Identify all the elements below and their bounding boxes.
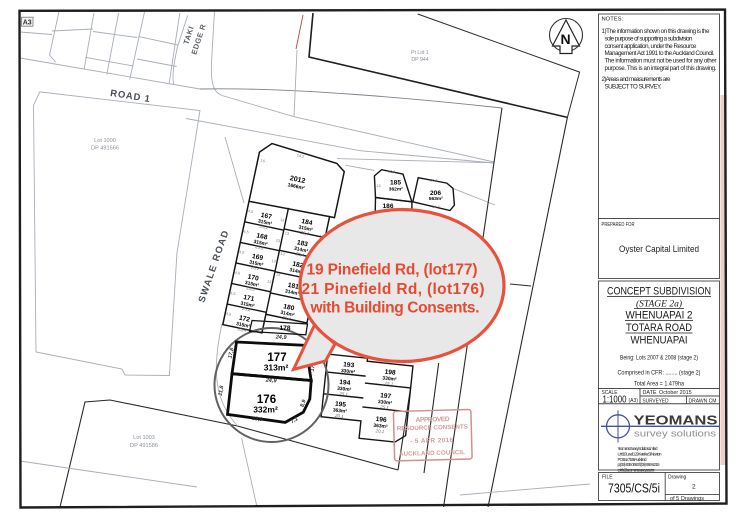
svg-text:563m²: 563m²: [429, 196, 444, 202]
svg-text:e: info@yeomanssurveys.co.nz: e: info@yeomanssurveys.co.nz: [618, 468, 655, 473]
svg-text:survey solutions: survey solutions: [634, 429, 717, 439]
svg-text:NOTES:: NOTES:: [602, 17, 624, 23]
svg-text:13: 13: [376, 184, 380, 188]
svg-text:WHENUAPAI: WHENUAPAI: [631, 335, 688, 347]
svg-text:25,1: 25,1: [338, 391, 349, 397]
svg-text:7305/CS/5i: 7305/CS/5i: [608, 482, 660, 496]
svg-text:sole purpose of supporting a s: sole purpose of supporting a subdivision: [605, 35, 694, 42]
svg-text:- 5 APR 2016: - 5 APR 2016: [410, 437, 454, 445]
svg-text:CONCEPT SUBDIVISION: CONCEPT SUBDIVISION: [607, 286, 711, 298]
svg-text:purpose. This is an integral p: purpose. This is an integral part of thi…: [605, 65, 717, 72]
svg-text:p:(09) 836 0660 f:(09) 969 62: p:(09) 836 0660 f:(09) 969 6219: [618, 462, 661, 467]
svg-text:21 Pinefield Rd, (lot176): 21 Pinefield Rd, (lot176): [302, 281, 485, 298]
svg-text:Comprised in CFR: ........ (st: Comprised in CFR: ........ (stage 2): [618, 370, 701, 377]
svg-text:20,1: 20,1: [334, 413, 345, 419]
svg-text:196: 196: [375, 416, 387, 424]
svg-text:198: 198: [384, 369, 396, 377]
svg-text:193: 193: [343, 361, 355, 369]
svg-text:of 5 Drawings: of 5 Drawings: [670, 496, 704, 502]
svg-text:2: 2: [692, 484, 696, 491]
svg-text:Oyster Capital Limited: Oyster Capital Limited: [619, 244, 699, 255]
svg-text:DP 491586: DP 491586: [130, 443, 158, 449]
svg-text:N: N: [560, 31, 570, 47]
svg-text:The information must not be us: The information must not be used for any…: [605, 58, 717, 65]
svg-text:Lot 1000: Lot 1000: [94, 138, 116, 144]
svg-text:19 Pinefield Rd, (lot177): 19 Pinefield Rd, (lot177): [307, 262, 478, 279]
svg-text:APPROVED: APPROVED: [416, 416, 450, 424]
svg-text:with Building Consents.: with Building Consents.: [310, 300, 480, 317]
svg-text:24,9: 24,9: [274, 334, 287, 341]
svg-text:(A3): (A3): [629, 398, 639, 404]
svg-text:185: 185: [390, 180, 401, 187]
svg-text:Drawing: Drawing: [668, 475, 687, 481]
svg-text:YEOMANS: YEOMANS: [634, 412, 719, 427]
svg-text:Total Area = 1.479ha: Total Area = 1.479ha: [634, 381, 684, 388]
svg-text:20,1: 20,1: [388, 170, 395, 174]
svg-text:34,4: 34,4: [432, 205, 439, 209]
svg-text:FILE: FILE: [602, 475, 613, 481]
svg-text:197: 197: [380, 392, 392, 400]
svg-text:Yeomans Survey Solutions Limit: Yeomans Survey Solutions Limited: [618, 446, 659, 451]
svg-text:195: 195: [335, 401, 347, 409]
svg-text:TOTARA ROAD: TOTARA ROAD: [626, 322, 692, 334]
svg-text:WHENUAPAI 2: WHENUAPAI 2: [626, 310, 693, 322]
svg-text:26,1: 26,1: [430, 179, 437, 183]
svg-text:332m²: 332m²: [253, 405, 278, 415]
svg-text:20,1: 20,1: [374, 428, 385, 434]
svg-text:362m²: 362m²: [389, 187, 404, 193]
svg-text:178: 178: [279, 325, 290, 332]
svg-text:DP 491566: DP 491566: [91, 146, 119, 152]
svg-text:1)The information shown on thi: 1)The information shown on this drawing …: [602, 28, 711, 35]
svg-text:PREPARED FOR: PREPARED FOR: [602, 222, 635, 228]
svg-text:DP 944: DP 944: [411, 57, 428, 63]
svg-text:2)Areas and measurements are: 2)Areas and measurements are: [602, 76, 672, 83]
svg-text:25,1: 25,1: [383, 381, 394, 387]
svg-text:Lot 1003: Lot 1003: [133, 435, 155, 441]
svg-text:October 2015: October 2015: [659, 390, 692, 396]
svg-text:A3: A3: [23, 20, 32, 27]
svg-text:25,1: 25,1: [379, 404, 390, 410]
svg-text:(STAGE 2a): (STAGE 2a): [636, 299, 682, 310]
svg-text:consent application, under the: consent application, under the Resource: [605, 43, 698, 50]
svg-text:PO Box 7199 Auckland: PO Box 7199 Auckland: [618, 457, 648, 462]
svg-text:Management Act 1991 to the Auc: Management Act 1991 to the Auckland Coun…: [605, 50, 715, 57]
svg-text:SUBJECT TO SURVEY.: SUBJECT TO SURVEY.: [605, 83, 662, 90]
svg-text:313m²: 313m²: [264, 363, 289, 373]
svg-text:Unit 10 Level 1 29 Karaka St N: Unit 10 Level 1 29 Karaka St Newton: [618, 451, 663, 456]
svg-text:DATE: DATE: [643, 390, 657, 396]
svg-text:Pt Lot 1: Pt Lot 1: [411, 50, 429, 56]
svg-text:194: 194: [339, 379, 351, 387]
svg-text:24,9: 24,9: [264, 378, 277, 385]
svg-text:Being: Lots 2007 & 2008 (stage: Being: Lots 2007 & 2008 (stage 2): [620, 355, 698, 362]
